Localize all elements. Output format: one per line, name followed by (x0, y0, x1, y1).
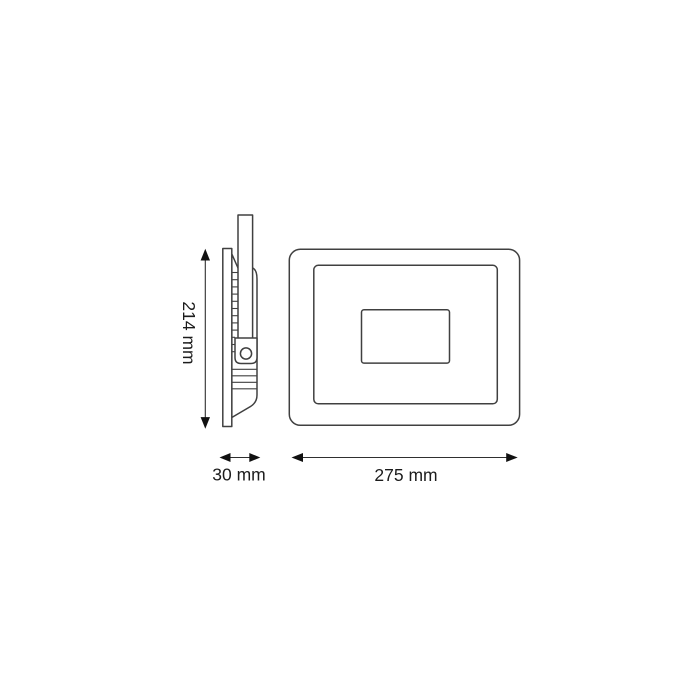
depth-arrow-right-icon (249, 453, 260, 462)
depth-arrow-left-icon (220, 453, 231, 462)
width-arrow-left-icon (292, 453, 304, 462)
driver-box (362, 310, 450, 363)
depth-dimension-label: 30 mm (212, 465, 265, 485)
depth-dimension: 30 mm (212, 453, 265, 485)
height-arrow-down-icon (201, 417, 210, 429)
diagram-canvas: 214 mm 30 mm 275 mm (0, 0, 700, 700)
height-dimension: 214 mm (179, 249, 210, 429)
width-dimension: 275 mm (292, 453, 518, 485)
height-arrow-up-icon (201, 249, 210, 261)
floodlight-dimension-drawing: 214 mm 30 mm 275 mm (0, 0, 700, 700)
mounting-bracket-arm (238, 215, 253, 341)
side-view (223, 215, 257, 427)
front-view (289, 249, 519, 425)
knob-screw (240, 348, 251, 359)
width-arrow-right-icon (506, 453, 518, 462)
width-dimension-label: 275 mm (374, 465, 437, 485)
front-panel-side (223, 249, 232, 427)
height-dimension-label: 214 mm (179, 301, 199, 364)
